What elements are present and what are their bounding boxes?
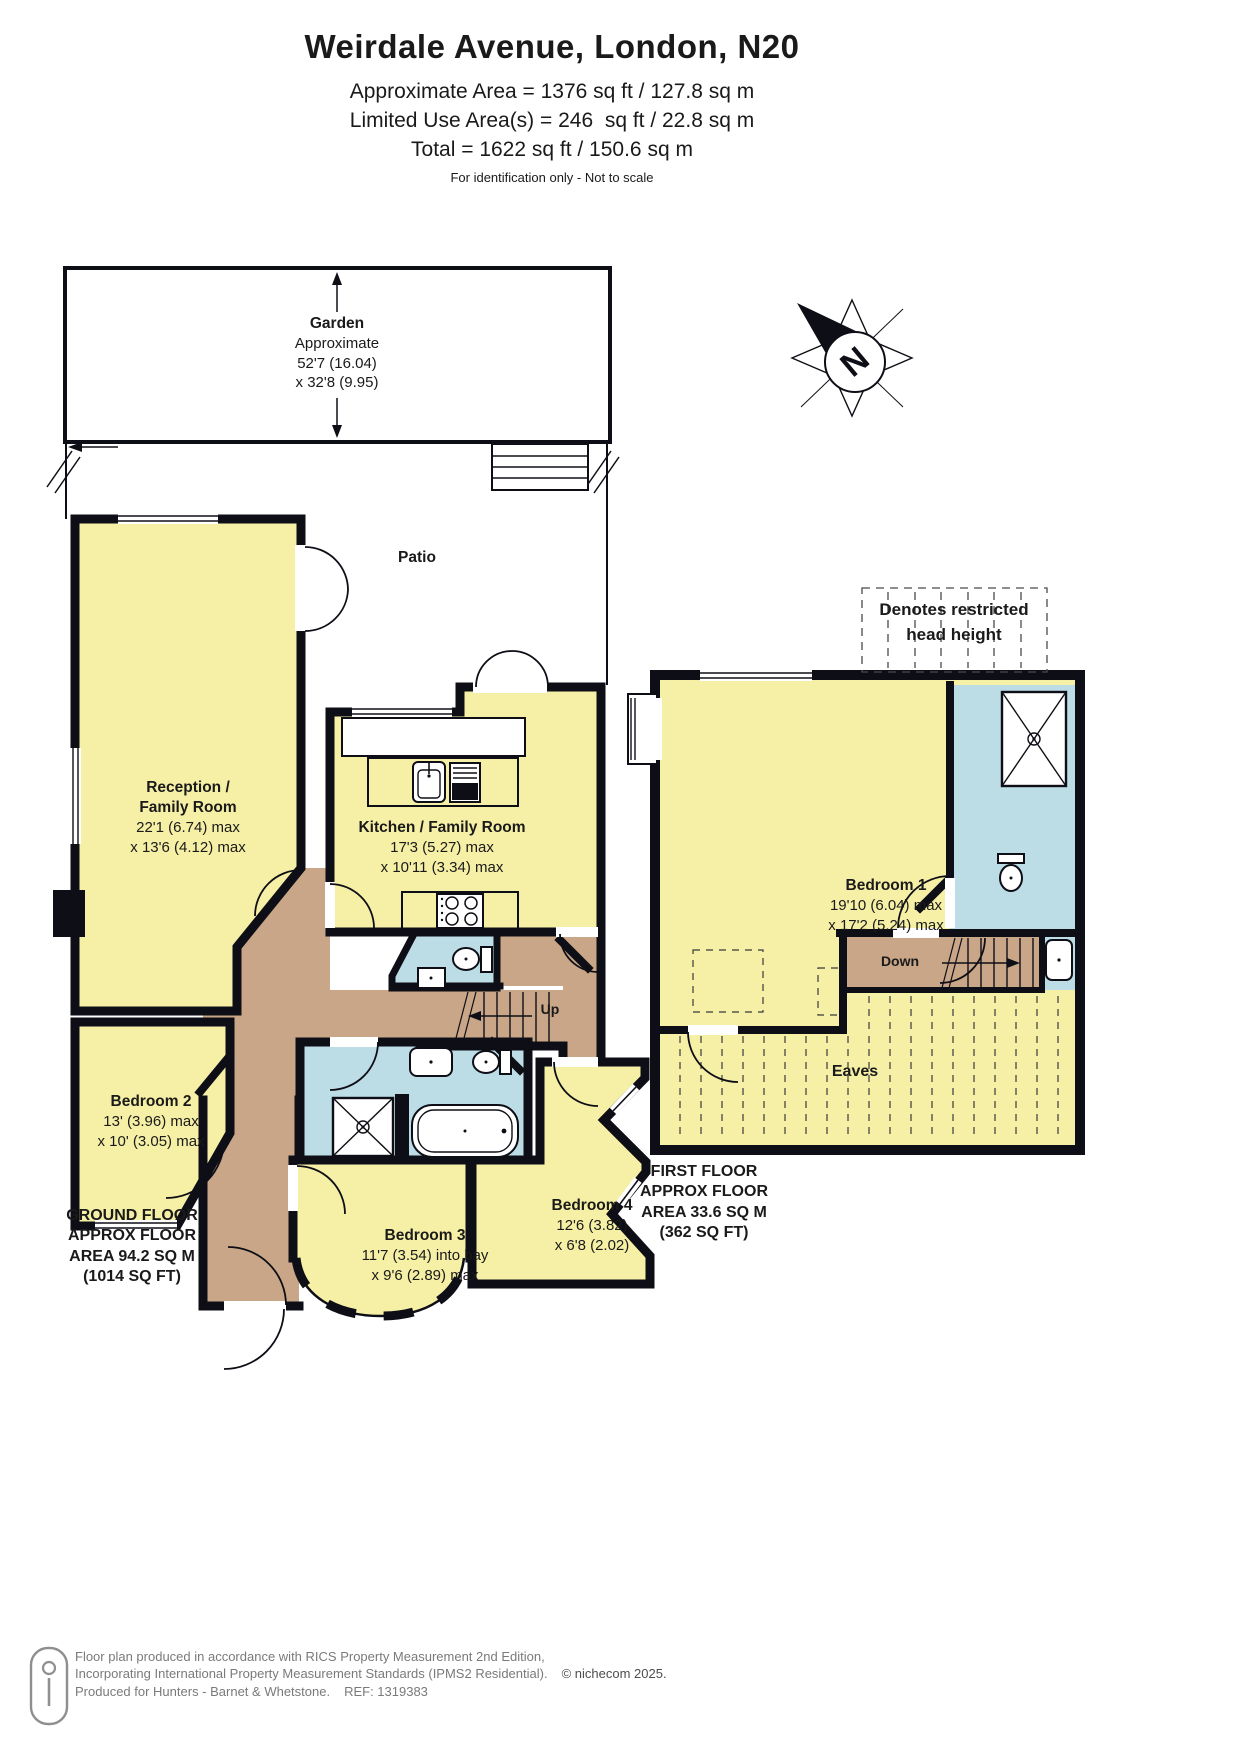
copyright: © nichecom 2025. [562, 1666, 667, 1681]
reference-number: REF: 1319383 [344, 1684, 428, 1699]
patio-label: Patio [398, 548, 436, 568]
page-title: Weirdale Avenue, London, N20 [0, 28, 1104, 66]
disclaimer: For identification only - Not to scale [0, 170, 1104, 185]
kitchen-skylight [342, 718, 525, 756]
footer-line3: Produced for Hunters - Barnet & Whetston… [75, 1683, 667, 1700]
total-area: Total = 1622 sq ft / 150.6 sq m [0, 138, 1104, 162]
patio-steps [492, 444, 588, 490]
eaves-label: Eaves [832, 1062, 878, 1083]
bedroom4-label: Bedroom 4 12'6 (3.82) x 6'8 (2.02) [552, 1196, 633, 1255]
footer: Floor plan produced in accordance with R… [75, 1648, 667, 1700]
footer-line1: Floor plan produced in accordance with R… [75, 1648, 667, 1665]
bedroom2-label: Bedroom 2 13' (3.96) max x 10' (3.05) ma… [97, 1092, 204, 1151]
compass-icon: N [792, 300, 912, 416]
plan-header: Weirdale Avenue, London, N20 Approximate… [0, 28, 1104, 185]
stairs-up-label: Up [541, 1000, 560, 1018]
chimney-breast [53, 890, 85, 937]
kitchen-label: Kitchen / Family Room 17'3 (5.27) max x … [358, 818, 525, 877]
stairs-down-label: Down [881, 952, 919, 970]
floorplan-drawing: N [0, 0, 1241, 1755]
garden-label: Garden Approximate 52'7 (16.04) x 32'8 (… [295, 314, 379, 393]
bedroom1-label: Bedroom 1 19'10 (6.04) max x 17'2 (5.24)… [828, 876, 943, 935]
first-floor-label: FIRST FLOOR APPROX FLOOR AREA 33.6 SQ M … [640, 1162, 768, 1244]
bedroom3-label: Bedroom 3 11'7 (3.54) into bay x 9'6 (2.… [362, 1226, 489, 1285]
floorplan-page: N Weirdale Avenue, London, N20 Approxima… [0, 0, 1241, 1755]
footer-line2: Incorporating International Property Mea… [75, 1665, 667, 1682]
limited-use-area: Limited Use Area(s) = 246 sq ft / 22.8 s… [0, 109, 1104, 133]
ground-floor-label: GROUND FLOOR APPROX FLOOR AREA 94.2 SQ M… [66, 1206, 198, 1288]
person-icon [31, 1648, 67, 1724]
reception-label: Reception / Family Room 22'1 (6.74) max … [130, 778, 245, 857]
legend-label: Denotes restricted head height [879, 598, 1028, 647]
approximate-area: Approximate Area = 1376 sq ft / 127.8 sq… [0, 80, 1104, 104]
